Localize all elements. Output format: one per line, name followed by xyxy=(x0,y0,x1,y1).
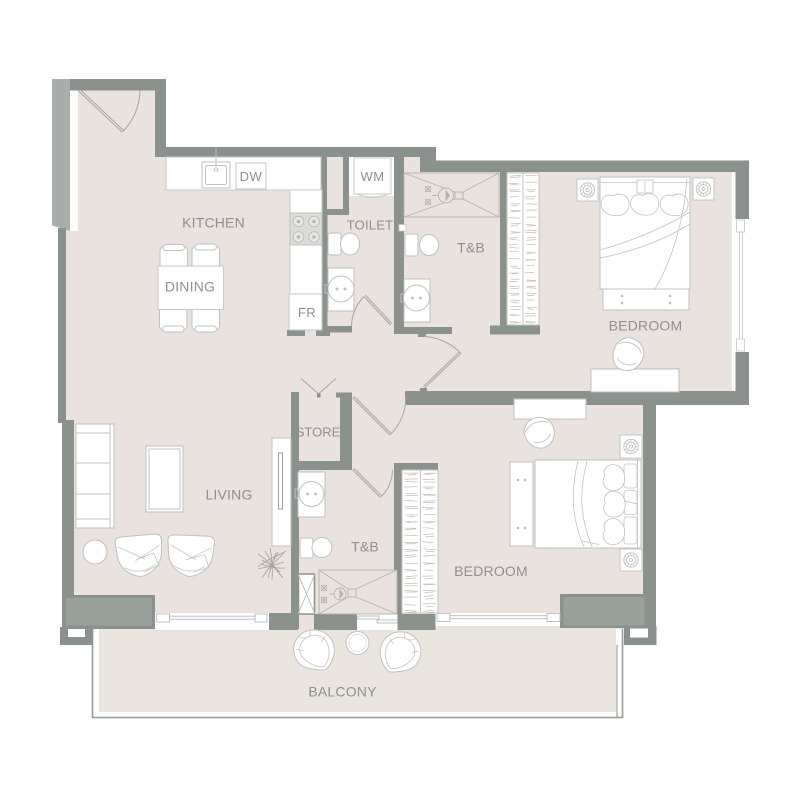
svg-text:LIVING: LIVING xyxy=(205,487,252,503)
svg-text:KITCHEN: KITCHEN xyxy=(182,215,245,231)
svg-text:TOILET: TOILET xyxy=(347,218,393,233)
svg-text:FR: FR xyxy=(298,305,316,320)
svg-text:T&B: T&B xyxy=(457,240,485,256)
svg-text:BEDROOM: BEDROOM xyxy=(609,318,683,334)
svg-text:BEDROOM: BEDROOM xyxy=(454,563,528,579)
svg-text:WM: WM xyxy=(360,169,384,184)
svg-text:DINING: DINING xyxy=(165,279,215,295)
svg-text:DW: DW xyxy=(240,169,263,184)
svg-text:STORE: STORE xyxy=(296,425,341,440)
svg-text:T&B: T&B xyxy=(351,539,379,555)
svg-text:BALCONY: BALCONY xyxy=(308,684,377,700)
